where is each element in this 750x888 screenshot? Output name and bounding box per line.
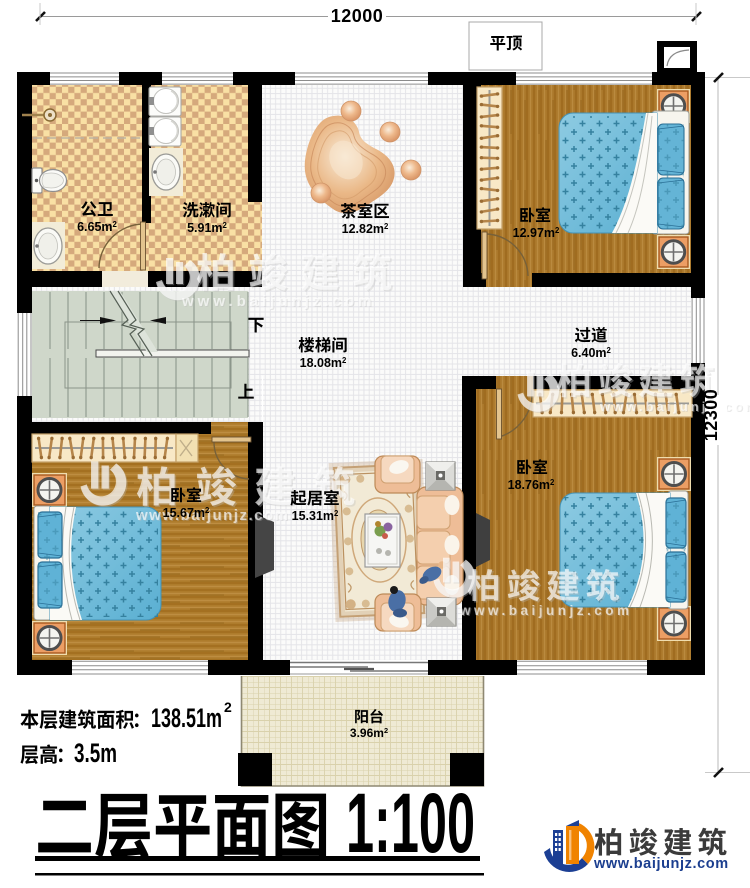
svg-text:18.76m2: 18.76m2	[508, 478, 555, 492]
svg-text:12000: 12000	[331, 6, 384, 26]
svg-text:18.08m2: 18.08m2	[300, 356, 347, 370]
svg-text:1:100: 1:100	[346, 776, 475, 870]
svg-text:www.baijunjz.com: www.baijunjz.com	[459, 603, 633, 618]
svg-text:6.40m2: 6.40m2	[571, 346, 611, 360]
svg-text:12300: 12300	[701, 389, 721, 442]
svg-text:6.65m2: 6.65m2	[77, 220, 117, 234]
svg-text:12.97m2: 12.97m2	[513, 226, 560, 240]
svg-text:3.5m: 3.5m	[74, 738, 117, 768]
svg-text:www.baijunjz.com: www.baijunjz.com	[599, 399, 750, 414]
svg-text:3.96m2: 3.96m2	[350, 726, 388, 740]
svg-text:2: 2	[224, 699, 232, 715]
svg-text:5.91m2: 5.91m2	[187, 221, 227, 235]
svg-text:15.31m2: 15.31m2	[292, 509, 339, 523]
svg-text:www.baijunjz.com: www.baijunjz.com	[593, 856, 729, 872]
svg-text:138.51m: 138.51m	[151, 703, 222, 733]
svg-text:www.baijunjz.com: www.baijunjz.com	[181, 293, 375, 310]
svg-text:www.baijunjz.com: www.baijunjz.com	[135, 507, 289, 524]
svg-text:12.82m2: 12.82m2	[342, 222, 389, 236]
svg-text:15.67m2: 15.67m2	[163, 506, 210, 520]
